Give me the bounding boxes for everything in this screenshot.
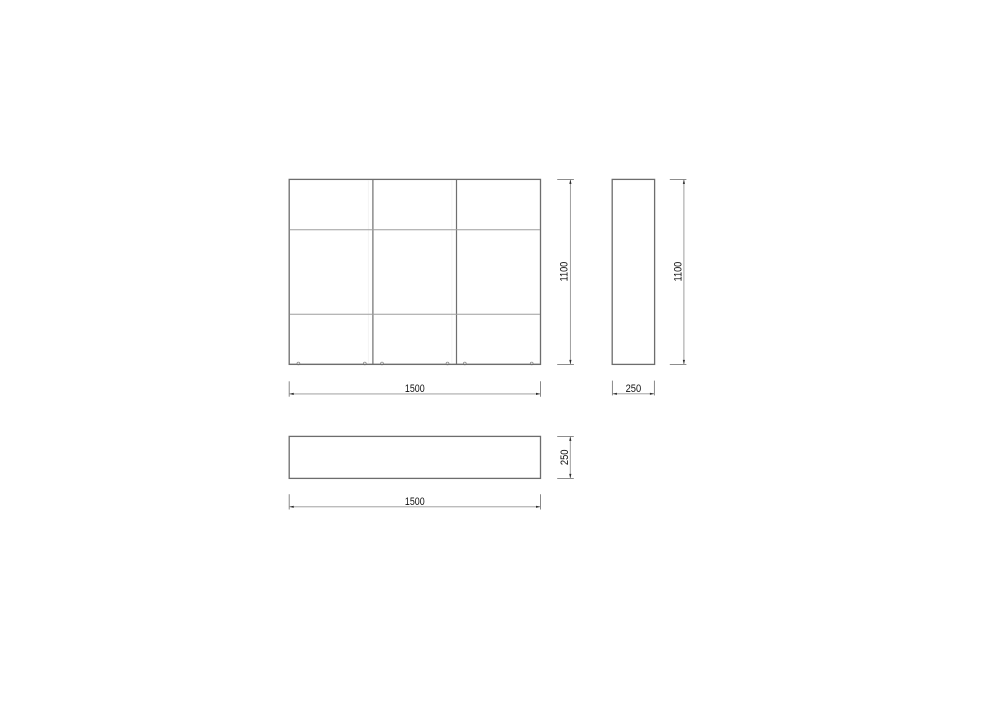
- svg-text:250: 250: [559, 450, 571, 466]
- svg-text:1100: 1100: [559, 262, 571, 282]
- svg-text:1500: 1500: [405, 383, 425, 395]
- svg-text:250: 250: [626, 383, 642, 395]
- svg-text:1500: 1500: [405, 496, 425, 508]
- svg-text:1100: 1100: [672, 262, 684, 282]
